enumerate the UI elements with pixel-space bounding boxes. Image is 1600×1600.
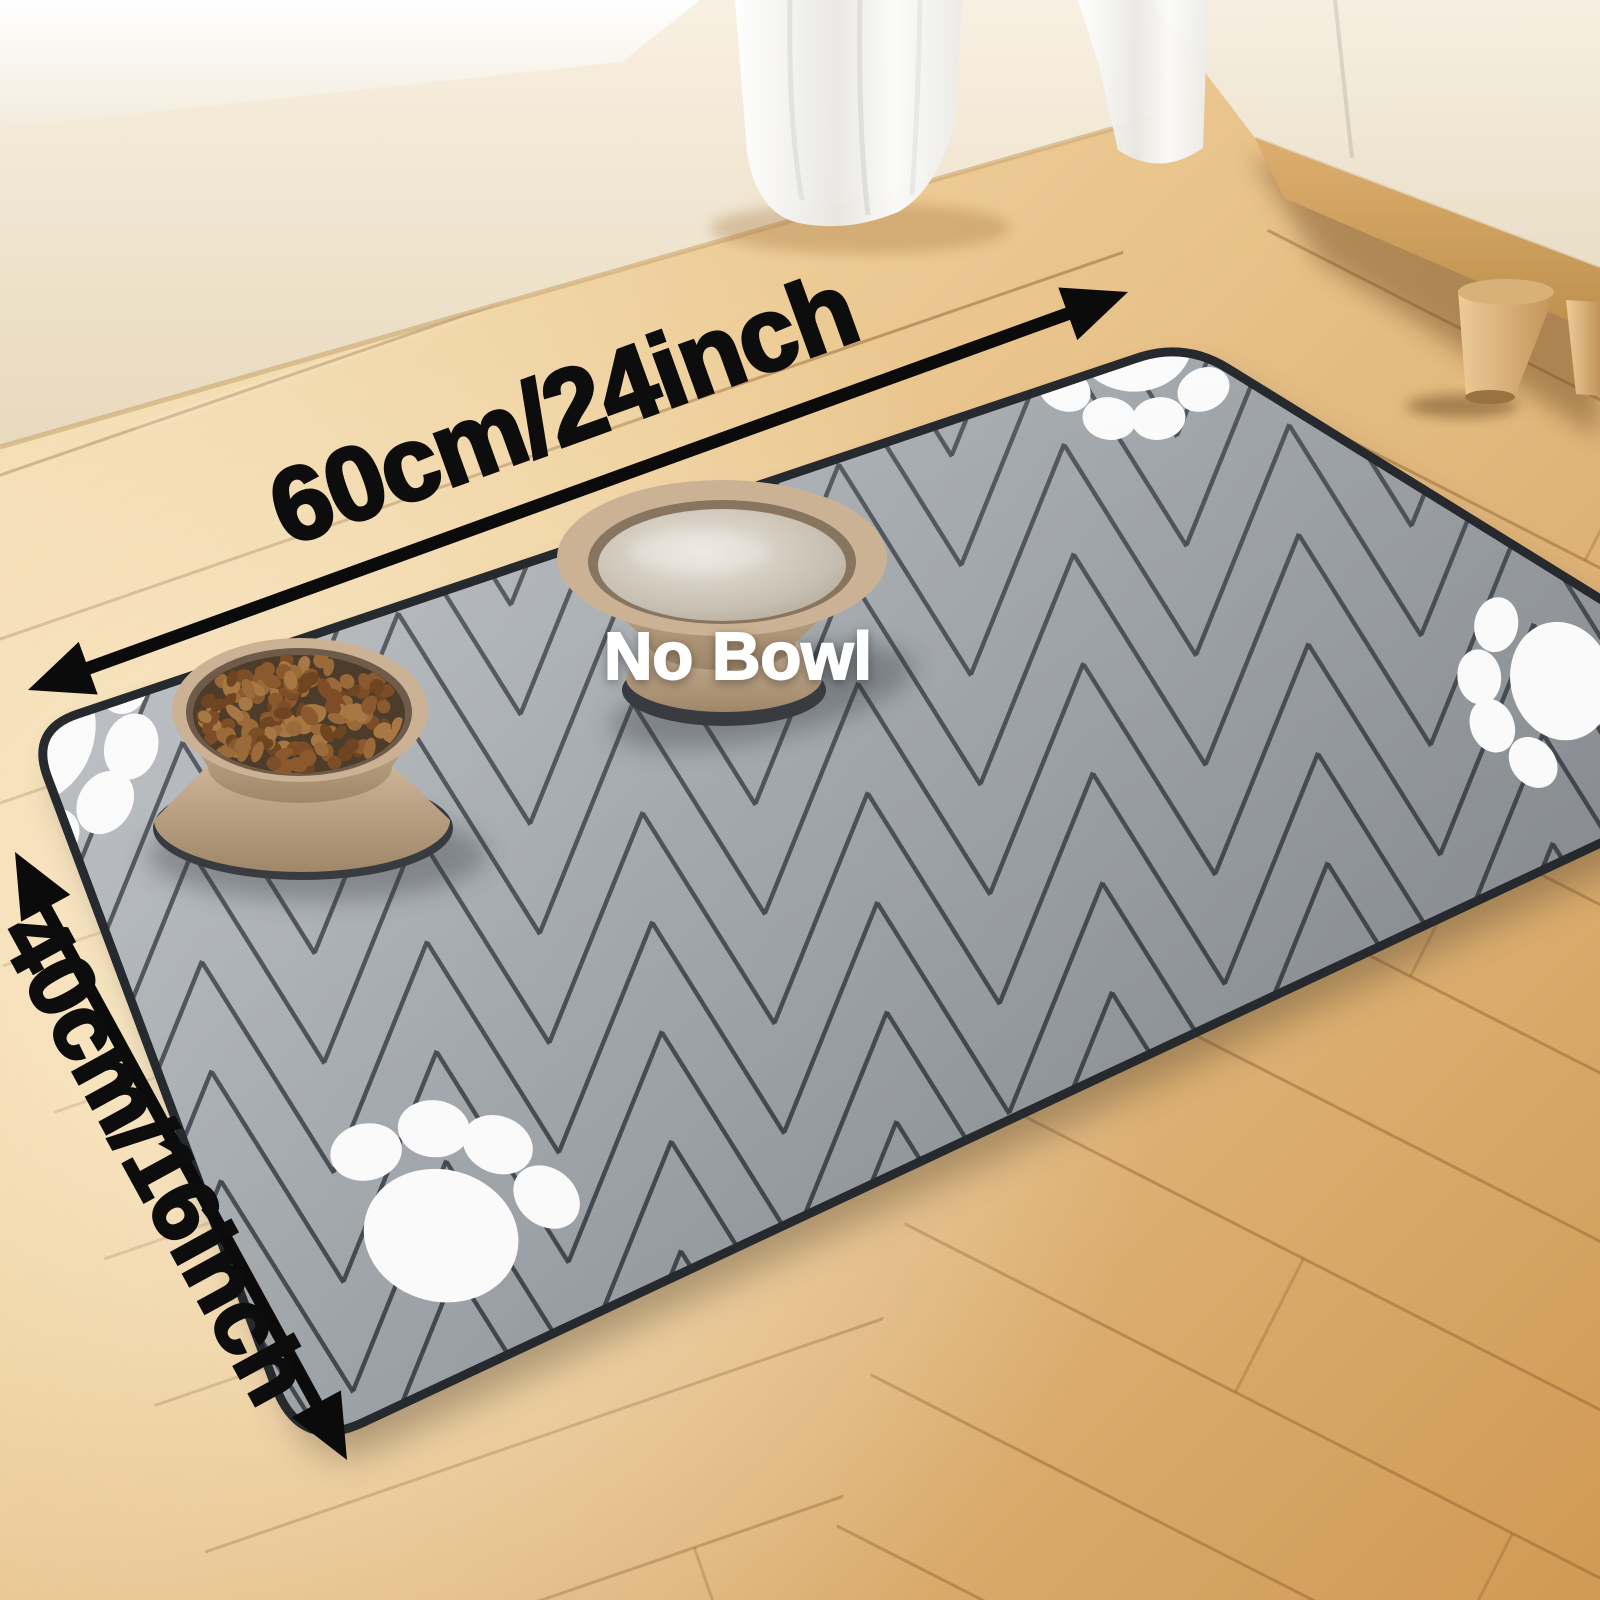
cabinet-leg-top <box>1458 279 1554 305</box>
no-bowl-label: No Bowl <box>604 619 872 694</box>
scene: No Bowl 60cm/24inch 40cm/16inch <box>0 0 1600 1600</box>
cabinet-leg-foot <box>1465 390 1515 404</box>
water-highlight <box>630 530 770 574</box>
product-photo: No Bowl 60cm/24inch 40cm/16inch <box>0 0 1600 1600</box>
